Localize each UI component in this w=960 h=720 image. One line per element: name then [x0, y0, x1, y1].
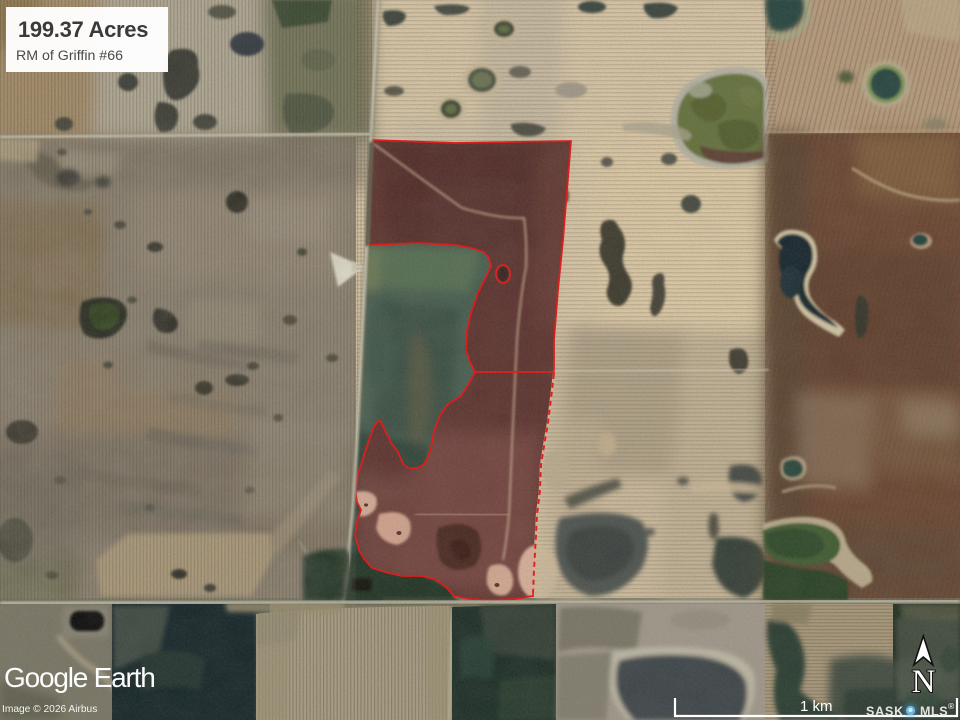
svg-text:SASK: SASK: [866, 705, 904, 719]
svg-text:RM of Griffin #66: RM of Griffin #66: [16, 48, 123, 64]
svg-text:N: N: [912, 664, 936, 700]
svg-text:199.37 Acres: 199.37 Acres: [18, 17, 148, 42]
svg-text:1 km: 1 km: [800, 698, 833, 715]
svg-text:Google Earth: Google Earth: [4, 662, 155, 693]
svg-text:®: ®: [948, 701, 955, 711]
svg-text:MLS: MLS: [920, 705, 948, 719]
svg-text:Image © 2026 Airbus: Image © 2026 Airbus: [2, 704, 97, 715]
